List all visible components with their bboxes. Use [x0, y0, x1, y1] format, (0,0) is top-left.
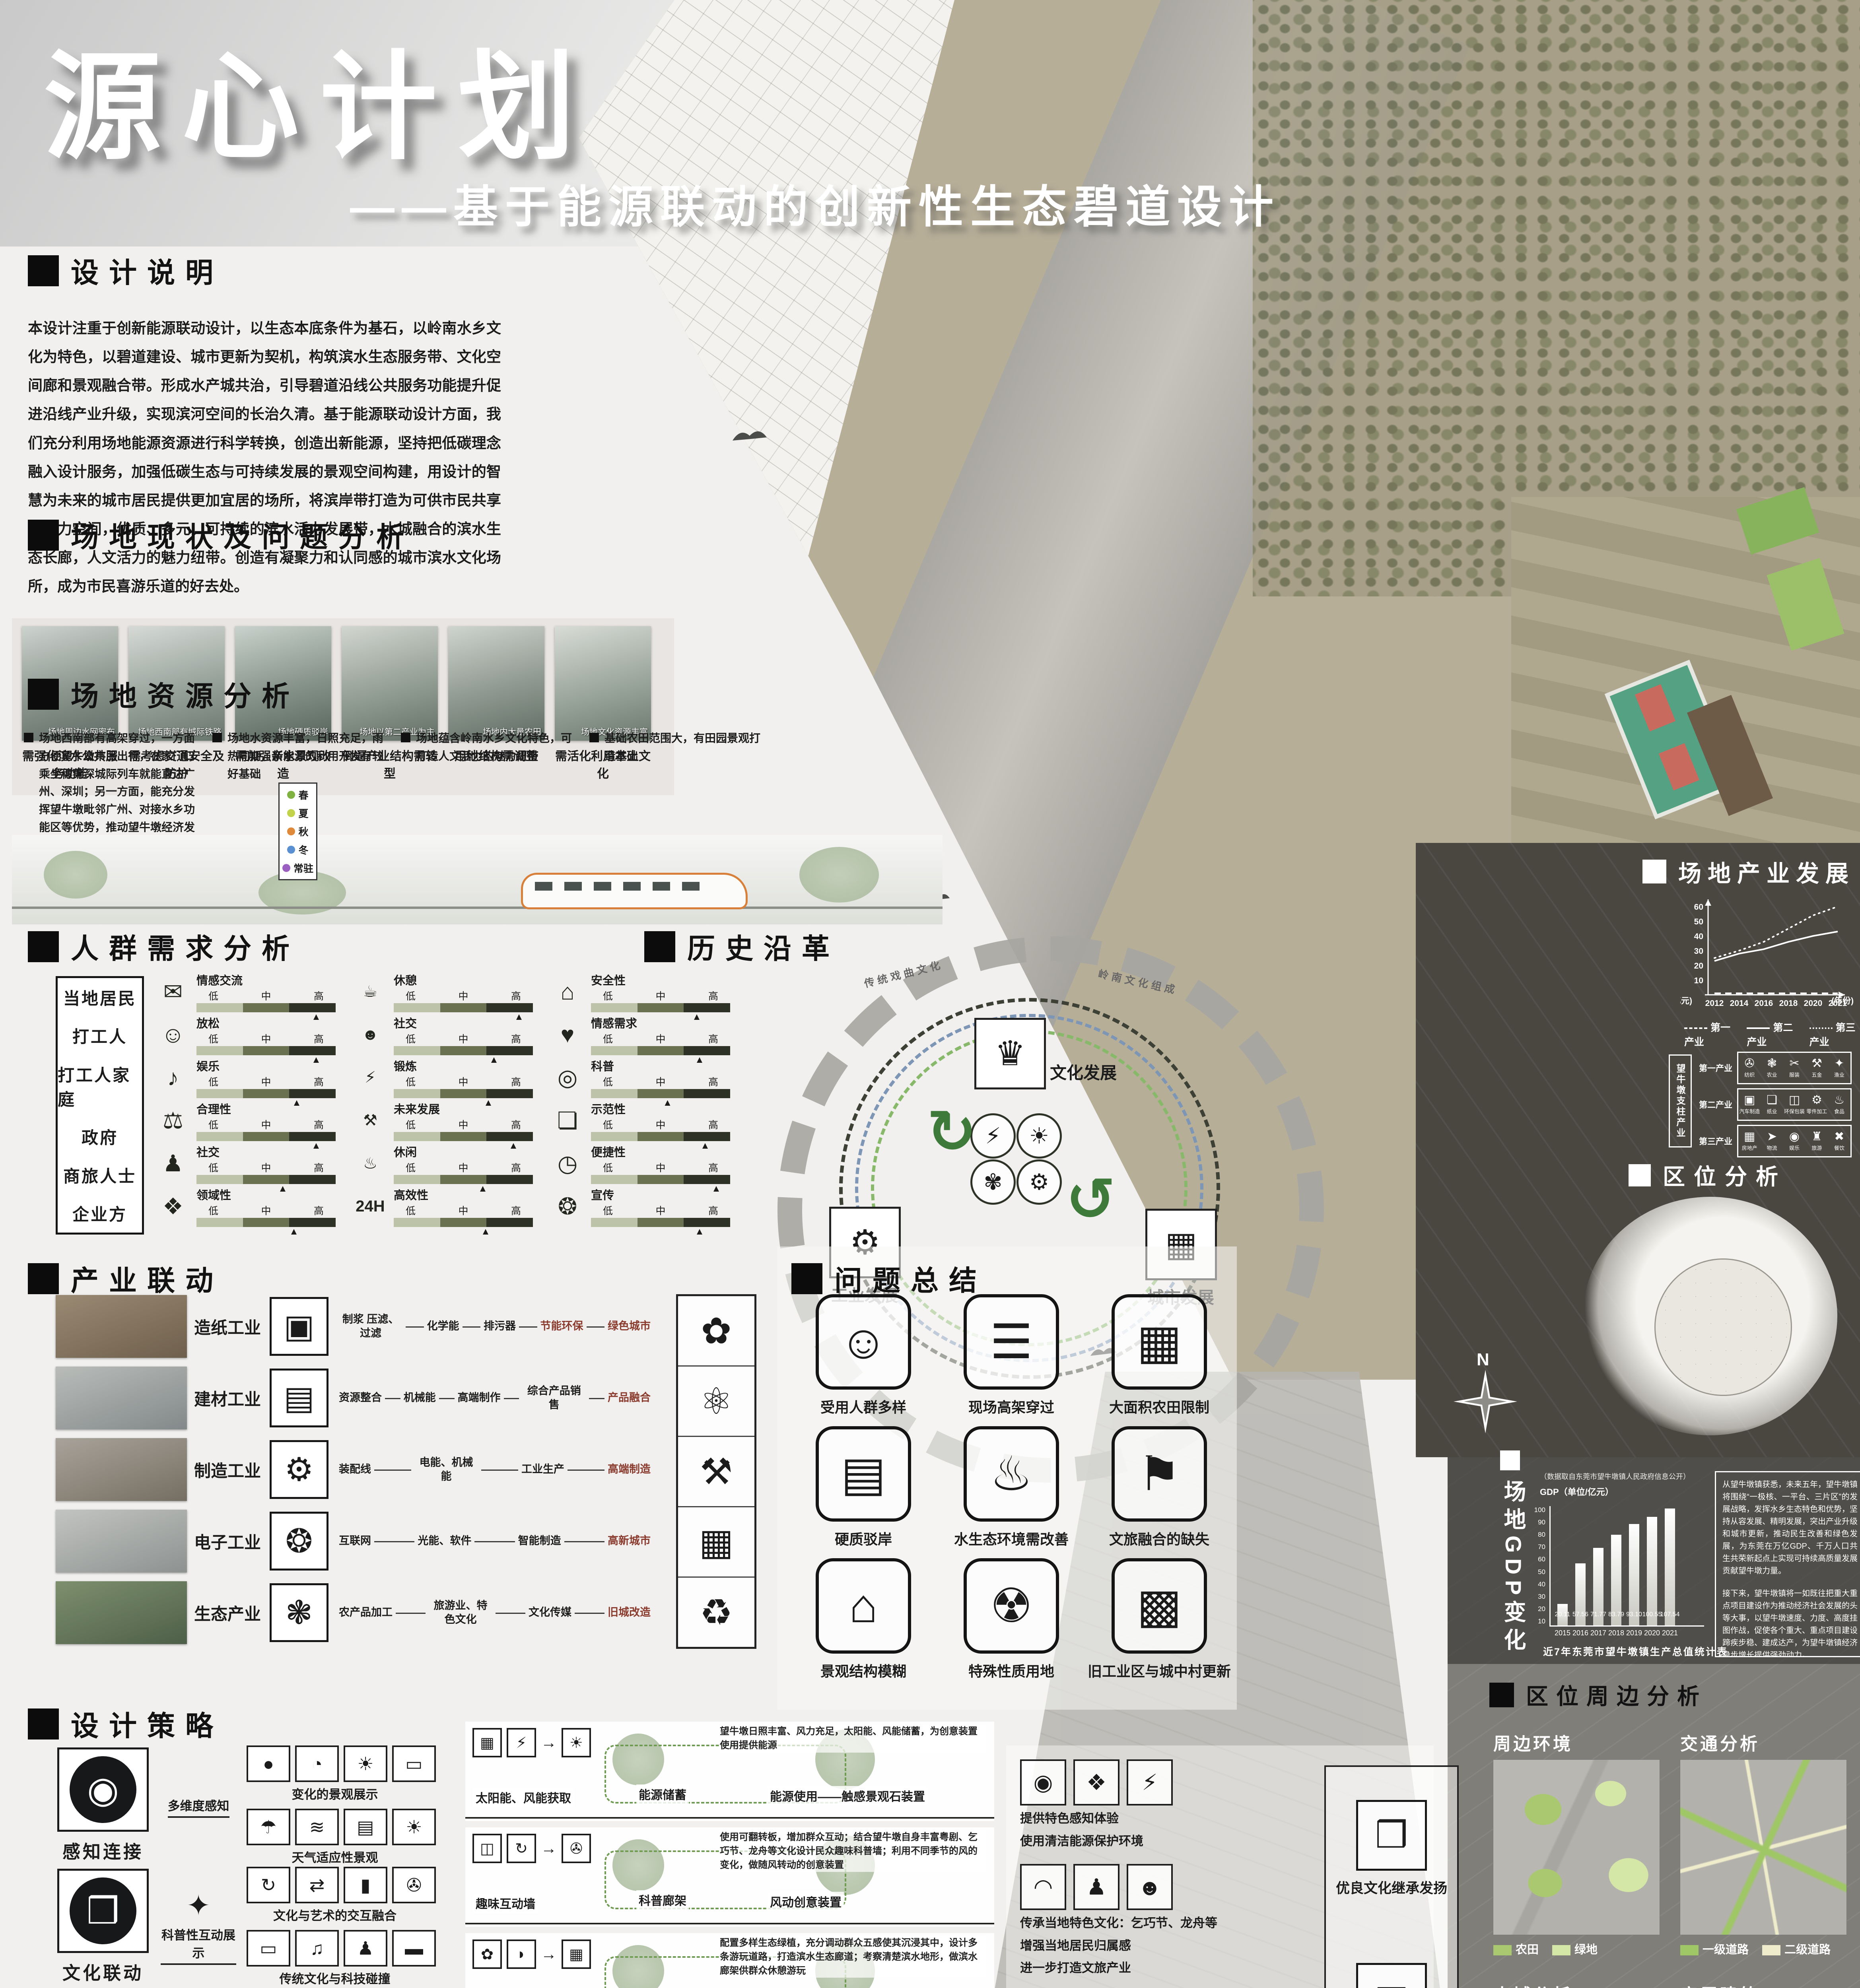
- goal-text: 提供特色感知体验: [1020, 1809, 1310, 1828]
- branch-icon: ☀: [344, 1745, 387, 1782]
- scale-bar: [394, 1218, 533, 1227]
- problem-icon: ⚑: [1112, 1426, 1207, 1522]
- bar-year: 2017: [1590, 1629, 1606, 1637]
- goal-text: 进一步打造文旅产业: [1020, 1959, 1310, 1978]
- svg-text:60: 60: [1694, 903, 1703, 912]
- compass: N: [1454, 1350, 1517, 1435]
- tier-caption: 汽车制造: [1739, 1107, 1760, 1115]
- need-scale: 安全性 低中高 ▲: [591, 971, 730, 1012]
- section-strategies: 设计策略: [28, 1704, 224, 1744]
- scale-bar: [591, 1175, 730, 1184]
- problem-cell: ☺ 受用人群多样: [789, 1294, 937, 1426]
- persona-label: 政府: [82, 1124, 118, 1149]
- scale-bar: [394, 1046, 533, 1055]
- gdp-source-note: （数据取自东莞市望牛墩镇人民政府信息公开）: [1540, 1471, 1711, 1481]
- outcome: ❒ 优良文化继承发扬: [1336, 1800, 1447, 1897]
- need-label: 情感交流: [196, 971, 336, 988]
- scale-marker-icon: ▲: [481, 1226, 490, 1237]
- section-industry-dev: 场地产业发展: [1642, 855, 1855, 888]
- branch-icon: ◔: [295, 1745, 339, 1782]
- legend-label: 绿地: [1574, 1943, 1598, 1956]
- goal-group: ◉ ❖ ⚡ 提供特色感知体验 使用清洁能源保护环境: [1020, 1759, 1310, 1850]
- bar-year: 2018: [1608, 1629, 1624, 1637]
- scale-bar: [591, 1089, 730, 1098]
- legend-label: 冬: [298, 843, 308, 857]
- tier-caption: 旅游: [1811, 1144, 1822, 1151]
- strategy-name: 感知连接: [62, 1837, 144, 1863]
- gdp-caption: 近7年东莞市望牛墩镇生产总值统计表: [1543, 1644, 1728, 1658]
- gdp-bar: 20.11 2015: [1557, 1506, 1568, 1625]
- flow-step: 工业生产: [518, 1461, 568, 1478]
- legend-item: 常驻: [282, 861, 313, 875]
- svg-text:20: 20: [1694, 961, 1703, 971]
- need-label: 休憩: [394, 971, 533, 988]
- need-icon: ♟: [156, 1146, 190, 1180]
- svg-text:2021: 2021: [1829, 999, 1847, 1008]
- need-row: ♟ 社交 低中高 ▲: [156, 1145, 336, 1182]
- legend-label: 二级道路: [1784, 1943, 1831, 1956]
- legend-label: 第一产业: [1684, 1022, 1730, 1048]
- panel-title: 交通分析: [1680, 1730, 1851, 1755]
- site-photo: 场地内大量农田: [448, 626, 544, 741]
- problem-label: 大面积农田限制: [1088, 1396, 1231, 1417]
- device-icon: ▦: [472, 1728, 502, 1757]
- branch-icon: ☂: [247, 1809, 290, 1845]
- strategy-groups: ◉ 感知连接 多维度感知 ● ◔ ☀ ▭ 变化的景观展示: [56, 1747, 436, 1988]
- needs-col-2: ☕ 休憩 低中高 ▲ ☻ 社交 低中高 ▲ ⚡: [353, 973, 533, 1225]
- need-row: ⌂ 安全性 低中高 ▲: [550, 973, 730, 1010]
- north-label: N: [1477, 1350, 1517, 1370]
- scale-bar: [394, 1089, 533, 1098]
- industry-icon: ⚙: [270, 1440, 328, 1499]
- industry-icon: ▤: [270, 1369, 328, 1427]
- needs-col-1: ✉ 情感交流 低中高 ▲ ☺ 放松 低中高 ▲ ♪: [156, 973, 336, 1225]
- branch-caption: 传统文化与科技碰撞: [247, 1969, 423, 1987]
- scale-marker-icon: ▲: [289, 1226, 299, 1237]
- industry-name: 生态产业: [194, 1601, 262, 1625]
- need-label: 高效性: [394, 1186, 533, 1203]
- need-scale: 放松 低中高 ▲: [196, 1014, 336, 1055]
- bar-value: 93.10: [1626, 1611, 1642, 1618]
- branch: ▭ ♫ ♟ ▬ 传统文化与科技碰撞: [247, 1930, 436, 1987]
- scale-mid: 中: [261, 1203, 271, 1217]
- design-note-body: 本设计注重于创新能源联动设计，以生态本底条件为基石，以岭南水乡文化为特色，以碧道…: [28, 314, 501, 601]
- need-icon: ❖: [156, 1189, 190, 1223]
- tick-label: 50: [1531, 1568, 1545, 1576]
- season-legend: 春 夏 秋 冬 常驻: [278, 782, 317, 880]
- branch: ☂ ≋ ▤ ☀ 天气适应性景观: [247, 1809, 436, 1866]
- strip-label: 能源储蓄: [636, 1784, 689, 1804]
- problem-icon: ⌂: [816, 1558, 911, 1654]
- need-label: 安全性: [591, 971, 730, 988]
- branch-icon: ▭: [247, 1930, 290, 1967]
- strip-note: 望牛墩日照丰富、风力充足，太阳能、风能储蓄，为创意装置使用提供能源: [720, 1725, 986, 1753]
- legend-chip-icon: [1762, 1945, 1780, 1955]
- court-red: [1635, 684, 1675, 732]
- goal-icon: ◠: [1020, 1864, 1066, 1910]
- need-scale: 未来发展 低中高 ▲: [394, 1100, 533, 1141]
- device-icon: ✇: [562, 1834, 591, 1863]
- bar-year: 2015: [1555, 1629, 1570, 1637]
- panel-title: 房屋建筑: [1680, 1981, 1851, 1988]
- industry-tiers: 第一产业 ✇纺织 ❃农业 ✂服装 ⚒五金 ✦渔业 第二产业 ▣汽车制造 ❏纸业 …: [1699, 1052, 1852, 1157]
- section-square-icon: [28, 931, 59, 962]
- tier-row: 第一产业 ✇纺织 ❃农业 ✂服装 ⚒五金 ✦渔业: [1699, 1052, 1852, 1084]
- industry-flow: 互联网 光能、软件 智能制造 高新城市: [336, 1532, 654, 1549]
- gdp-y-label: GDP（单位/亿元）: [1540, 1485, 1614, 1498]
- need-icon: ❂: [550, 1189, 585, 1223]
- need-row: ◎ 科普 低中高 ▲: [550, 1059, 730, 1096]
- strategy-group: ◉ 感知连接 多维度感知 ● ◔ ☀ ▭ 变化的景观展示: [56, 1747, 436, 1863]
- gdp-bar: 93.10 2019: [1629, 1506, 1640, 1625]
- goal-text: 传承当地特色文化：乞巧节、龙舟等: [1020, 1914, 1310, 1933]
- section-location: 区位分析: [1629, 1159, 1787, 1191]
- problem-label: 水生态环境需改善: [940, 1528, 1083, 1549]
- resource-montage: [12, 835, 943, 924]
- section-surroundings: 区位周边分析: [1489, 1679, 1707, 1711]
- industry-name: 电子工业: [194, 1529, 262, 1553]
- scale-bar: [196, 1132, 336, 1141]
- need-scale: 休憩 低中高 ▲: [394, 971, 533, 1012]
- map-panel: 周边环境 农田 绿地: [1493, 1730, 1664, 1957]
- section-square-icon: [1500, 1450, 1520, 1470]
- viaduct-line: [12, 907, 943, 909]
- strategy-icon-box: ❒: [57, 1869, 149, 1953]
- flow-step: 绿色城市: [604, 1318, 654, 1335]
- problem-label: 特殊性质用地: [940, 1660, 1083, 1681]
- tick-label: 40: [1531, 1580, 1545, 1588]
- flow-step: 旅游业、特色文化: [426, 1597, 496, 1628]
- industry-icon: ❃: [270, 1583, 328, 1642]
- branch-icon: ▬: [392, 1930, 436, 1967]
- scale-mid: 中: [261, 1074, 271, 1089]
- tier-box: ▦房地产 ➤物流 ◉娱乐 ♜旅游 ✖餐饮: [1737, 1125, 1852, 1157]
- tier-icon: ⚙: [1811, 1094, 1822, 1106]
- section-site-status: 场地现状及问题分析: [28, 515, 414, 555]
- tier-box: ▣汽车制造 ❏纸业 ◫环保包装 ⚙零件加工 ♨食品: [1737, 1088, 1852, 1121]
- section-problems: 问题总结: [791, 1258, 987, 1299]
- tick-label: 70: [1531, 1543, 1545, 1551]
- industry-outcome-column: ✿⚛⚒▦♻: [676, 1294, 756, 1649]
- town-circle-map: [1654, 1258, 1792, 1396]
- strategy-icon-box: ◉: [57, 1747, 149, 1832]
- industry-rows: 造纸工业 ▣ 制浆 压滤、过滤 化学能 排污器 节能环保 绿色城市 建材工业 ▤…: [56, 1294, 654, 1645]
- strip-label: 科普廊架: [636, 1890, 689, 1909]
- strategy-mid: 多维度感知: [161, 1747, 236, 1863]
- legend-item: 秋: [287, 824, 308, 839]
- section-square-icon: [28, 1263, 59, 1294]
- bar-value: 71.77: [1590, 1611, 1606, 1618]
- tier-icon: ✖: [1834, 1131, 1844, 1143]
- problem-cell: ▤ 硬质驳岸: [789, 1426, 937, 1558]
- tier-caption: 环保包装: [1784, 1107, 1805, 1115]
- svg-text:2016: 2016: [1755, 999, 1773, 1008]
- need-scale: 便捷性 低中高 ▲: [591, 1143, 730, 1184]
- section-square-icon: [1642, 860, 1666, 883]
- gdp-bar: 57.56 2016: [1575, 1506, 1586, 1625]
- tier-icon: ▦: [1744, 1131, 1755, 1143]
- goal-icon: ☻: [1127, 1864, 1173, 1910]
- goal-icon: ◉: [1020, 1759, 1066, 1806]
- scale-high: 高: [314, 1203, 324, 1217]
- need-label: 便捷性: [591, 1143, 730, 1160]
- tier-caption: 房地产: [1742, 1144, 1757, 1151]
- legend-chip-icon: [1680, 1945, 1699, 1955]
- device-icon: ◫: [472, 1834, 502, 1863]
- need-scale: 情感交流 低中高 ▲: [196, 971, 336, 1012]
- tier-box: ✇纺织 ❃农业 ✂服装 ⚒五金 ✦渔业: [1737, 1052, 1852, 1084]
- need-row: 24H 高效性 低中高 ▲: [353, 1188, 533, 1225]
- industry-photo: [56, 1295, 187, 1358]
- outcome: ▦ 打造现代滨江水城: [1336, 1963, 1447, 1988]
- need-row: ☻ 社交 低中高 ▲: [353, 1016, 533, 1053]
- industry-photo: [56, 1581, 187, 1644]
- flow-step: 光能、软件: [414, 1532, 474, 1549]
- industry-row: 制造工业 ⚙ 装配线 电能、机械能 工业生产 高端制造: [56, 1437, 654, 1502]
- map-panel: 交通分析 一级道路 二级道路: [1680, 1730, 1851, 1957]
- need-icon: ⚡: [353, 1060, 387, 1095]
- section-title: 历史沿革: [687, 926, 840, 967]
- legend-chip-icon: [1552, 1945, 1570, 1955]
- scale-low: 低: [208, 1203, 218, 1217]
- need-scale: 社交 低中高 ▲: [394, 1014, 533, 1055]
- bar-year: 2016: [1572, 1629, 1588, 1637]
- svg-text:2020: 2020: [1804, 999, 1823, 1008]
- flow-step: 旧城改造: [604, 1604, 654, 1621]
- bar-value: 83.79: [1608, 1611, 1624, 1618]
- problem-label: 硬质驳岸: [792, 1528, 935, 1549]
- gdp-bar: 100.55 2020: [1646, 1506, 1658, 1625]
- need-icon: ☺: [156, 1017, 190, 1052]
- scale-high: 高: [314, 1117, 324, 1132]
- energy-chips: ▦ ⚡ → ☀: [472, 1728, 591, 1757]
- section-drawings: ▦ ⚡ → ☀ 望牛墩日照丰富、风力充足，太阳能、风能储蓄，为创意装置使用提供能…: [465, 1722, 994, 1988]
- tier-icon: ✦: [1834, 1058, 1844, 1070]
- goal-groups: ◉ ❖ ⚡ 提供特色感知体验 使用清洁能源保护环境 ◠ ♟ ☻ 传承当地特色文化…: [1020, 1759, 1310, 1988]
- industry-row: 建材工业 ▤ 资源整合 机械能 高端制作 综合产品销售 产品融合: [56, 1366, 654, 1430]
- industry-name: 建材工业: [194, 1386, 262, 1410]
- industry-name: 造纸工业: [194, 1314, 262, 1339]
- need-icon: ⚒: [353, 1103, 387, 1138]
- flow-step: 农产品加工: [336, 1604, 396, 1621]
- pillar-industries-label: 望牛墩支柱产业: [1669, 1054, 1692, 1147]
- branch-caption: 天气适应性景观: [247, 1848, 423, 1866]
- tier-caption: 零件加工: [1806, 1107, 1827, 1115]
- tick-label: 20: [1531, 1605, 1545, 1613]
- section-title: 设计说明: [71, 250, 224, 291]
- tier-caption: 农业: [1767, 1071, 1777, 1078]
- strip-label: 趣味互动墙: [473, 1893, 538, 1912]
- section-site-resources: 场地资源分析: [28, 674, 300, 714]
- svg-text:2018: 2018: [1779, 999, 1798, 1008]
- tier-caption: 食品: [1834, 1107, 1844, 1115]
- section-crowd-needs: 人群需求分析: [28, 926, 300, 967]
- flow-step: 装配线: [336, 1461, 374, 1478]
- panel-legend: 农田 绿地: [1493, 1940, 1664, 1957]
- need-icon: ✉: [156, 975, 190, 1009]
- scale-bar: [196, 1089, 336, 1098]
- tree-blob: [799, 847, 879, 903]
- train-windows: [535, 882, 710, 891]
- need-icon: ◷: [550, 1146, 585, 1180]
- device-icon: ◗: [507, 1939, 536, 1969]
- scale-mid: 中: [261, 1160, 271, 1175]
- tier-caption: 五金: [1811, 1071, 1822, 1078]
- industry-row: 生态产业 ❃ 农产品加工 旅游业、特色文化 文化传媒 旧城改造: [56, 1580, 654, 1645]
- bullet-square-icon: [401, 733, 410, 742]
- section-square-icon: [28, 1708, 59, 1739]
- outcome-icon: ✿: [678, 1296, 754, 1367]
- outcome-label: 优良文化继承发扬: [1336, 1877, 1447, 1897]
- legend-dot-icon: [287, 809, 295, 817]
- persona-label: 打工人: [72, 1023, 127, 1048]
- need-icon: ❏: [550, 1103, 585, 1138]
- section-industry-linkage: 产业联动: [28, 1258, 224, 1299]
- eco-gear-icon: ⚙: [1016, 1159, 1062, 1205]
- section-title: 场地现状及问题分析: [71, 515, 414, 555]
- tick-label: 60: [1531, 1555, 1545, 1563]
- flow-step: 高新城市: [604, 1532, 654, 1549]
- tier-name: 第一产业: [1699, 1062, 1733, 1074]
- scale-bar: [394, 1003, 533, 1012]
- wind-plant-icon: ✾: [970, 1159, 1016, 1205]
- scale-bar: [196, 1046, 336, 1055]
- strip-label: [879, 1805, 884, 1807]
- industry-photo: [56, 1438, 187, 1501]
- poster-title: 源心计划: [44, 12, 596, 182]
- need-scale: 合理性 低中高 ▲: [196, 1100, 336, 1141]
- need-scale: 情感需求 低中高 ▲: [591, 1014, 730, 1055]
- scale-high: 高: [314, 988, 324, 1003]
- problems-grid: ☺ 受用人群多样 ☰ 现场高架穿过 ▦ 大面积农田限制 ▤ 硬质驳岸 ♨ 水生态…: [789, 1294, 1233, 1690]
- tier-caption: 娱乐: [1789, 1144, 1800, 1151]
- branch-icon: ▭: [392, 1745, 436, 1782]
- flow-step: 互联网: [336, 1532, 374, 1549]
- energy-bolt-icon: ⚡: [970, 1113, 1016, 1159]
- branch-icon: ▤: [344, 1809, 387, 1845]
- device-icon: ↻: [507, 1834, 536, 1863]
- bar-year: 2021: [1662, 1629, 1678, 1637]
- need-scale: 娱乐 低中高 ▲: [196, 1057, 336, 1098]
- strip-label: 风动创意装置: [768, 1892, 844, 1911]
- branch: ↻ ⇄ ▮ ✇ 文化与艺术的交互融合: [247, 1867, 436, 1924]
- branch-icon: ≋: [295, 1809, 339, 1845]
- bullet-square-icon: [589, 733, 599, 742]
- section-square-icon: [1489, 1683, 1514, 1707]
- strip-note: 配置多样生态绿植，充分调动群众五感使其沉浸其中，设计多条游玩道路，打造滨水生态廊…: [720, 1936, 986, 1978]
- device-icon: ⚡: [507, 1728, 536, 1757]
- problem-icon: ▩: [1112, 1558, 1207, 1654]
- site-photo: 场地以第二产业为主: [342, 626, 438, 741]
- strategy-icon: ◉: [70, 1756, 136, 1823]
- tier-name: 第二产业: [1699, 1099, 1733, 1110]
- gdp-y-ticks: 100908070605040302010: [1531, 1506, 1545, 1625]
- goal-icon: ♟: [1073, 1864, 1119, 1910]
- legend-label: 秋: [298, 824, 308, 839]
- problem-icon: ♨: [964, 1426, 1059, 1522]
- legend-label: 春: [298, 788, 308, 802]
- panel-legend: 一级道路 二级道路: [1680, 1940, 1851, 1957]
- tier-caption: 服装: [1789, 1071, 1800, 1078]
- need-row: ☺ 放松 低中高 ▲: [156, 1016, 336, 1053]
- section-title: 设计策略: [71, 1704, 224, 1744]
- need-label: 娱乐: [196, 1057, 336, 1074]
- bar-value: 107.54: [1660, 1611, 1680, 1618]
- bar-year: 2019: [1626, 1629, 1642, 1637]
- section-drawing-strip: ◫ ↻ → ✇ 使用可翻转板，增加群众互动；结合望牛墩自身丰富粤剧、乞巧节、龙舟…: [465, 1827, 994, 1927]
- scale-low: 低: [208, 1117, 218, 1132]
- tier-icon: ◫: [1789, 1094, 1800, 1106]
- goal-icon: ⚡: [1127, 1759, 1173, 1806]
- tier-icon: ⚒: [1811, 1058, 1822, 1070]
- culture-icon: ♛: [995, 1034, 1025, 1074]
- strip-note: 使用可翻转板，增加群众互动；结合望牛墩自身丰富粤剧、乞巧节、龙舟等文化设计民众趣…: [720, 1831, 986, 1872]
- need-row: ◷ 便捷性 低中高 ▲: [550, 1145, 730, 1182]
- need-scale: 示范性 低中高 ▲: [591, 1100, 730, 1141]
- tier-caption: 纸业: [1767, 1107, 1777, 1115]
- goal-icon: ❖: [1073, 1759, 1119, 1806]
- gdp-paragraph: 从望牛墩镇获悉，未来五年，望牛墩镇将围绕“一极核、一平台、三片区”的发展战略，发…: [1722, 1479, 1858, 1577]
- problem-label: 受用人群多样: [792, 1396, 935, 1417]
- flow-step: 高端制作: [455, 1389, 504, 1406]
- section-square-icon: [28, 520, 59, 551]
- industry-name: 制造工业: [194, 1458, 262, 1482]
- need-scale: 锻炼 低中高 ▲: [394, 1057, 533, 1098]
- need-icon: ☻: [353, 1017, 387, 1052]
- industry-flow: 农产品加工 旅游业、特色文化 文化传媒 旧城改造: [336, 1597, 654, 1628]
- scale-high: 高: [314, 1031, 324, 1046]
- need-icon: 24H: [353, 1189, 387, 1223]
- problem-label: 现场高架穿过: [940, 1396, 1083, 1417]
- svg-text:30: 30: [1694, 947, 1703, 956]
- scale-bar: [591, 1046, 730, 1055]
- need-icon: ⚖: [156, 1103, 190, 1138]
- outcome-icon: ⚛: [678, 1367, 754, 1437]
- section-title: 区位周边分析: [1526, 1679, 1707, 1711]
- persona-label: 商旅人士: [63, 1163, 136, 1187]
- svg-text:50: 50: [1694, 917, 1703, 926]
- tier-icon: ◉: [1789, 1131, 1800, 1143]
- goal-text: 使用清洁能源保护环境: [1020, 1832, 1310, 1851]
- need-scale: 科普 低中高 ▲: [591, 1057, 730, 1098]
- problem-icon: ☢: [964, 1558, 1059, 1654]
- legend-item: 冬: [287, 843, 308, 857]
- energy-chips: ◫ ↻ → ✇: [472, 1834, 591, 1863]
- tick-label: 10: [1531, 1617, 1545, 1625]
- swallow-icon: [732, 425, 768, 445]
- scale-mid: 中: [261, 988, 271, 1003]
- goal-text: 增强当地居民归属感: [1020, 1937, 1310, 1955]
- strategy-icon: ❒: [70, 1877, 136, 1944]
- section-title: 场地资源分析: [71, 674, 300, 714]
- need-label: 示范性: [591, 1100, 730, 1117]
- section-square-icon: [28, 679, 59, 710]
- device-icon: ☀: [562, 1728, 591, 1757]
- tier-icon: ▣: [1744, 1094, 1755, 1106]
- industry-chart-legend: 第一产业 第二产业 第三产业: [1684, 1020, 1860, 1048]
- flow-step: 化学能: [424, 1318, 463, 1335]
- tick-label: 80: [1531, 1531, 1545, 1539]
- tier-icon: ♜: [1811, 1131, 1822, 1143]
- strip-label: 能源使用——触感景观石装置: [768, 1786, 927, 1805]
- flow-step: 文化传媒: [525, 1604, 575, 1621]
- outcome-icon: ▦: [678, 1507, 754, 1578]
- svg-text:10: 10: [1694, 976, 1703, 985]
- section-design-note: 设计说明: [28, 250, 224, 291]
- outcome-icon: ❒: [1356, 1800, 1427, 1871]
- flow-step: 高端制造: [604, 1461, 654, 1478]
- tick-label: 30: [1531, 1593, 1545, 1601]
